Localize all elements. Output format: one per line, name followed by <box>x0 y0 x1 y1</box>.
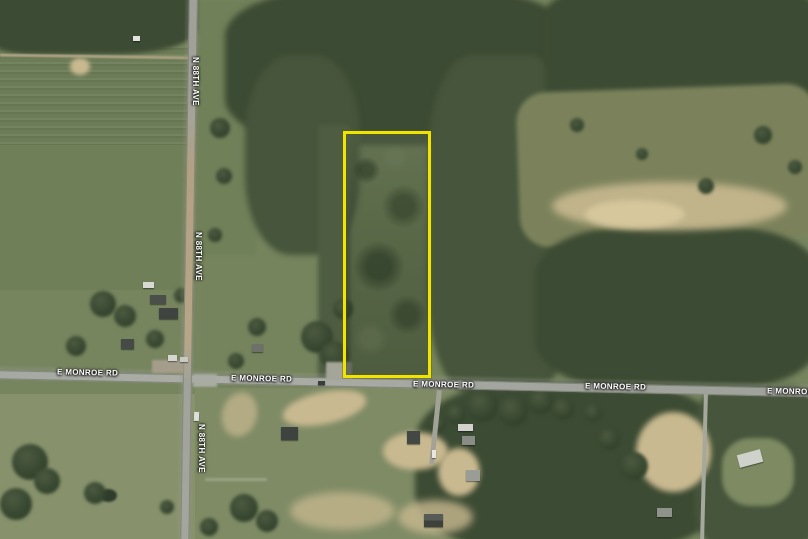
building <box>462 436 475 445</box>
tree <box>620 452 648 480</box>
tree <box>446 404 466 424</box>
road-label-e-monroe-4: E MONROE RD <box>585 381 646 391</box>
tree <box>160 500 174 514</box>
aerial-satellite-map: E MONROE RD E MONROE RD E MONROE RD E MO… <box>0 0 808 539</box>
tree <box>146 330 164 348</box>
road-label-e-monroe-5: E MONROE RD <box>767 386 808 396</box>
terrain-forest <box>535 228 808 388</box>
tree <box>230 494 258 522</box>
vehicle <box>318 381 325 385</box>
building <box>657 508 672 517</box>
tree <box>598 428 620 450</box>
building <box>458 424 473 431</box>
building <box>150 295 166 304</box>
tree <box>84 482 106 504</box>
tree <box>210 118 230 138</box>
sand-patch <box>636 412 711 492</box>
road-label-e-monroe-1: E MONROE RD <box>57 367 118 377</box>
sand-patch <box>290 492 395 530</box>
building <box>424 514 443 527</box>
tree <box>552 398 574 420</box>
building <box>407 431 420 444</box>
tree <box>114 305 136 327</box>
tree <box>698 178 714 194</box>
building <box>133 36 140 41</box>
tree <box>200 518 218 536</box>
road-label-n-88th-2: N 88TH AVE <box>194 232 203 281</box>
vehicle <box>432 450 436 458</box>
building <box>159 308 178 319</box>
tree <box>248 318 266 336</box>
building <box>143 282 154 288</box>
building <box>168 355 177 361</box>
building <box>466 470 480 481</box>
tree <box>466 390 498 422</box>
tree <box>228 353 244 369</box>
terrain-field <box>0 46 193 150</box>
tree <box>90 291 116 317</box>
tree <box>34 468 60 494</box>
intersection <box>193 374 217 387</box>
road-label-n-88th-1: N 88TH AVE <box>191 57 200 106</box>
road-label-e-monroe-2: E MONROE RD <box>231 373 292 383</box>
building <box>180 357 188 362</box>
tree <box>788 160 802 174</box>
building <box>121 339 134 349</box>
tree <box>0 488 32 520</box>
sand-patch <box>585 200 685 228</box>
tree <box>528 388 554 414</box>
road-label-e-monroe-3: E MONROE RD <box>413 379 474 389</box>
terrain-clearing <box>722 438 794 506</box>
tree <box>498 396 528 426</box>
road-label-n-88th-3: N 88TH AVE <box>197 424 206 473</box>
tree <box>216 168 232 184</box>
tree <box>256 510 278 532</box>
vehicle <box>194 412 199 421</box>
field-boundary-line <box>205 478 267 481</box>
building <box>252 344 263 352</box>
sand-patch <box>70 58 90 75</box>
building <box>281 427 298 440</box>
tree <box>66 336 86 356</box>
tree <box>636 148 648 160</box>
tree <box>208 228 222 242</box>
tree <box>570 118 584 132</box>
tree <box>754 126 772 144</box>
terrain-forest <box>0 0 197 54</box>
terrain-field <box>0 145 192 295</box>
parcel-boundary <box>343 131 431 378</box>
tree <box>584 404 602 422</box>
